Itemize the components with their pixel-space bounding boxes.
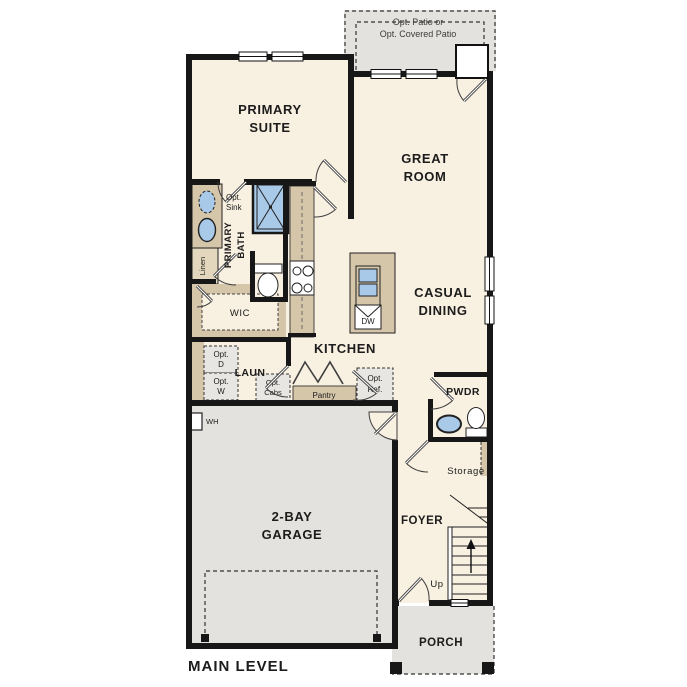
laundry-cabinet-strip: [192, 342, 204, 400]
burner: [293, 267, 301, 275]
wall-segment: [392, 440, 398, 649]
floor-plan-page: Opt. Patio or Opt. Covered Patio: [0, 0, 687, 687]
wall-segment: [348, 54, 354, 219]
wall-segment: [186, 54, 192, 649]
wall-segment: [250, 251, 255, 302]
opt-sink-label-line1: Opt.: [226, 193, 241, 202]
wall-segment: [186, 643, 398, 649]
stairs-up-label: Up: [430, 579, 443, 590]
wall-segment: [186, 279, 216, 284]
opt-washer-line2: W: [217, 387, 225, 396]
wall-segment: [288, 181, 316, 186]
wall-segment: [186, 179, 220, 185]
wall-segment: [288, 333, 316, 337]
primary-suite-label-line1: PRIMARY: [238, 102, 302, 117]
shower-drain: [269, 205, 272, 208]
garage-door-stop-right: [373, 634, 381, 642]
water-heater: [191, 413, 202, 430]
primary-bath-label-line2: BATH: [236, 231, 247, 258]
optional-sink-basin: [199, 191, 215, 213]
wall-segment: [428, 437, 493, 442]
garage-floor: [189, 403, 395, 646]
porch-label: PORCH: [419, 637, 463, 649]
porch-post-right: [482, 662, 494, 674]
wall-segment: [487, 71, 493, 606]
powder-toilet-tank: [466, 428, 487, 437]
wall-segment: [286, 337, 291, 366]
laundry-label: LAUN: [235, 367, 266, 379]
powder-toilet-bowl: [468, 408, 485, 429]
patio-door-landing: [456, 45, 488, 78]
wall-segment: [392, 400, 398, 412]
dishwasher-label: DW: [361, 317, 375, 326]
opt-ref-line1: Opt.: [367, 374, 382, 383]
window: [371, 70, 401, 79]
patio-label-line2: Opt. Covered Patio: [380, 29, 457, 39]
window: [485, 296, 494, 324]
pantry-label: Pantry: [312, 391, 335, 400]
opt-dryer-line2: D: [218, 360, 224, 369]
powder-sink: [437, 416, 461, 433]
toilet-bowl: [258, 273, 278, 297]
wall-segment: [434, 372, 493, 377]
burner: [303, 266, 313, 276]
window: [451, 600, 468, 607]
primary-suite-label-line2: SUITE: [249, 120, 290, 135]
storage-label: Storage: [447, 466, 484, 477]
window: [272, 52, 303, 61]
casual-dining-label-line1: CASUAL: [414, 285, 472, 300]
powder-label: PWDR: [446, 386, 480, 398]
wall-segment: [186, 337, 291, 342]
wall-segment: [429, 600, 451, 606]
opt-washer-line1: Opt.: [213, 377, 228, 386]
island-sink-basin-2: [359, 284, 377, 296]
wic-label: WIC: [230, 308, 250, 319]
burner: [292, 283, 302, 293]
window: [485, 257, 494, 291]
window: [239, 52, 267, 61]
stair-rail: [448, 527, 452, 600]
porch-post-left: [390, 662, 402, 674]
opt-sink-label-line2: Sink: [226, 203, 243, 212]
great-room-label-line1: GREAT: [401, 151, 449, 166]
garage-label-line2: GARAGE: [262, 527, 323, 542]
island-sink-basin-1: [359, 269, 377, 282]
wall-segment: [250, 297, 288, 302]
linen-label: Linen: [198, 257, 207, 275]
wall-segment: [468, 600, 493, 606]
wall-segment: [186, 400, 398, 406]
wall-segment: [283, 179, 288, 241]
burner: [304, 284, 312, 292]
kitchen-label: KITCHEN: [314, 341, 376, 356]
wall-segment: [186, 54, 354, 60]
patio-label-line1: Opt. Patio or: [393, 17, 444, 27]
wall-segment: [428, 399, 433, 442]
great-room-label-line2: ROOM: [404, 169, 447, 184]
toilet-tank: [254, 264, 282, 273]
wall-segment: [283, 241, 288, 302]
window: [406, 70, 437, 79]
sink-basin: [199, 219, 216, 242]
casual-dining-label-line2: DINING: [418, 303, 467, 318]
opt-dryer-line1: Opt.: [213, 350, 228, 359]
garage-label-line1: 2-BAY: [272, 509, 313, 524]
primary-bath-label-line1: PRIMARY: [223, 222, 234, 269]
garage-door-stop-left: [201, 634, 209, 642]
water-heater-label: WH: [206, 417, 219, 426]
wall-segment: [350, 71, 456, 77]
foyer-label: FOYER: [401, 515, 443, 527]
level-title: MAIN LEVEL: [188, 658, 289, 675]
floor-plan-drawing: Opt. Patio or Opt. Covered Patio: [0, 0, 687, 687]
